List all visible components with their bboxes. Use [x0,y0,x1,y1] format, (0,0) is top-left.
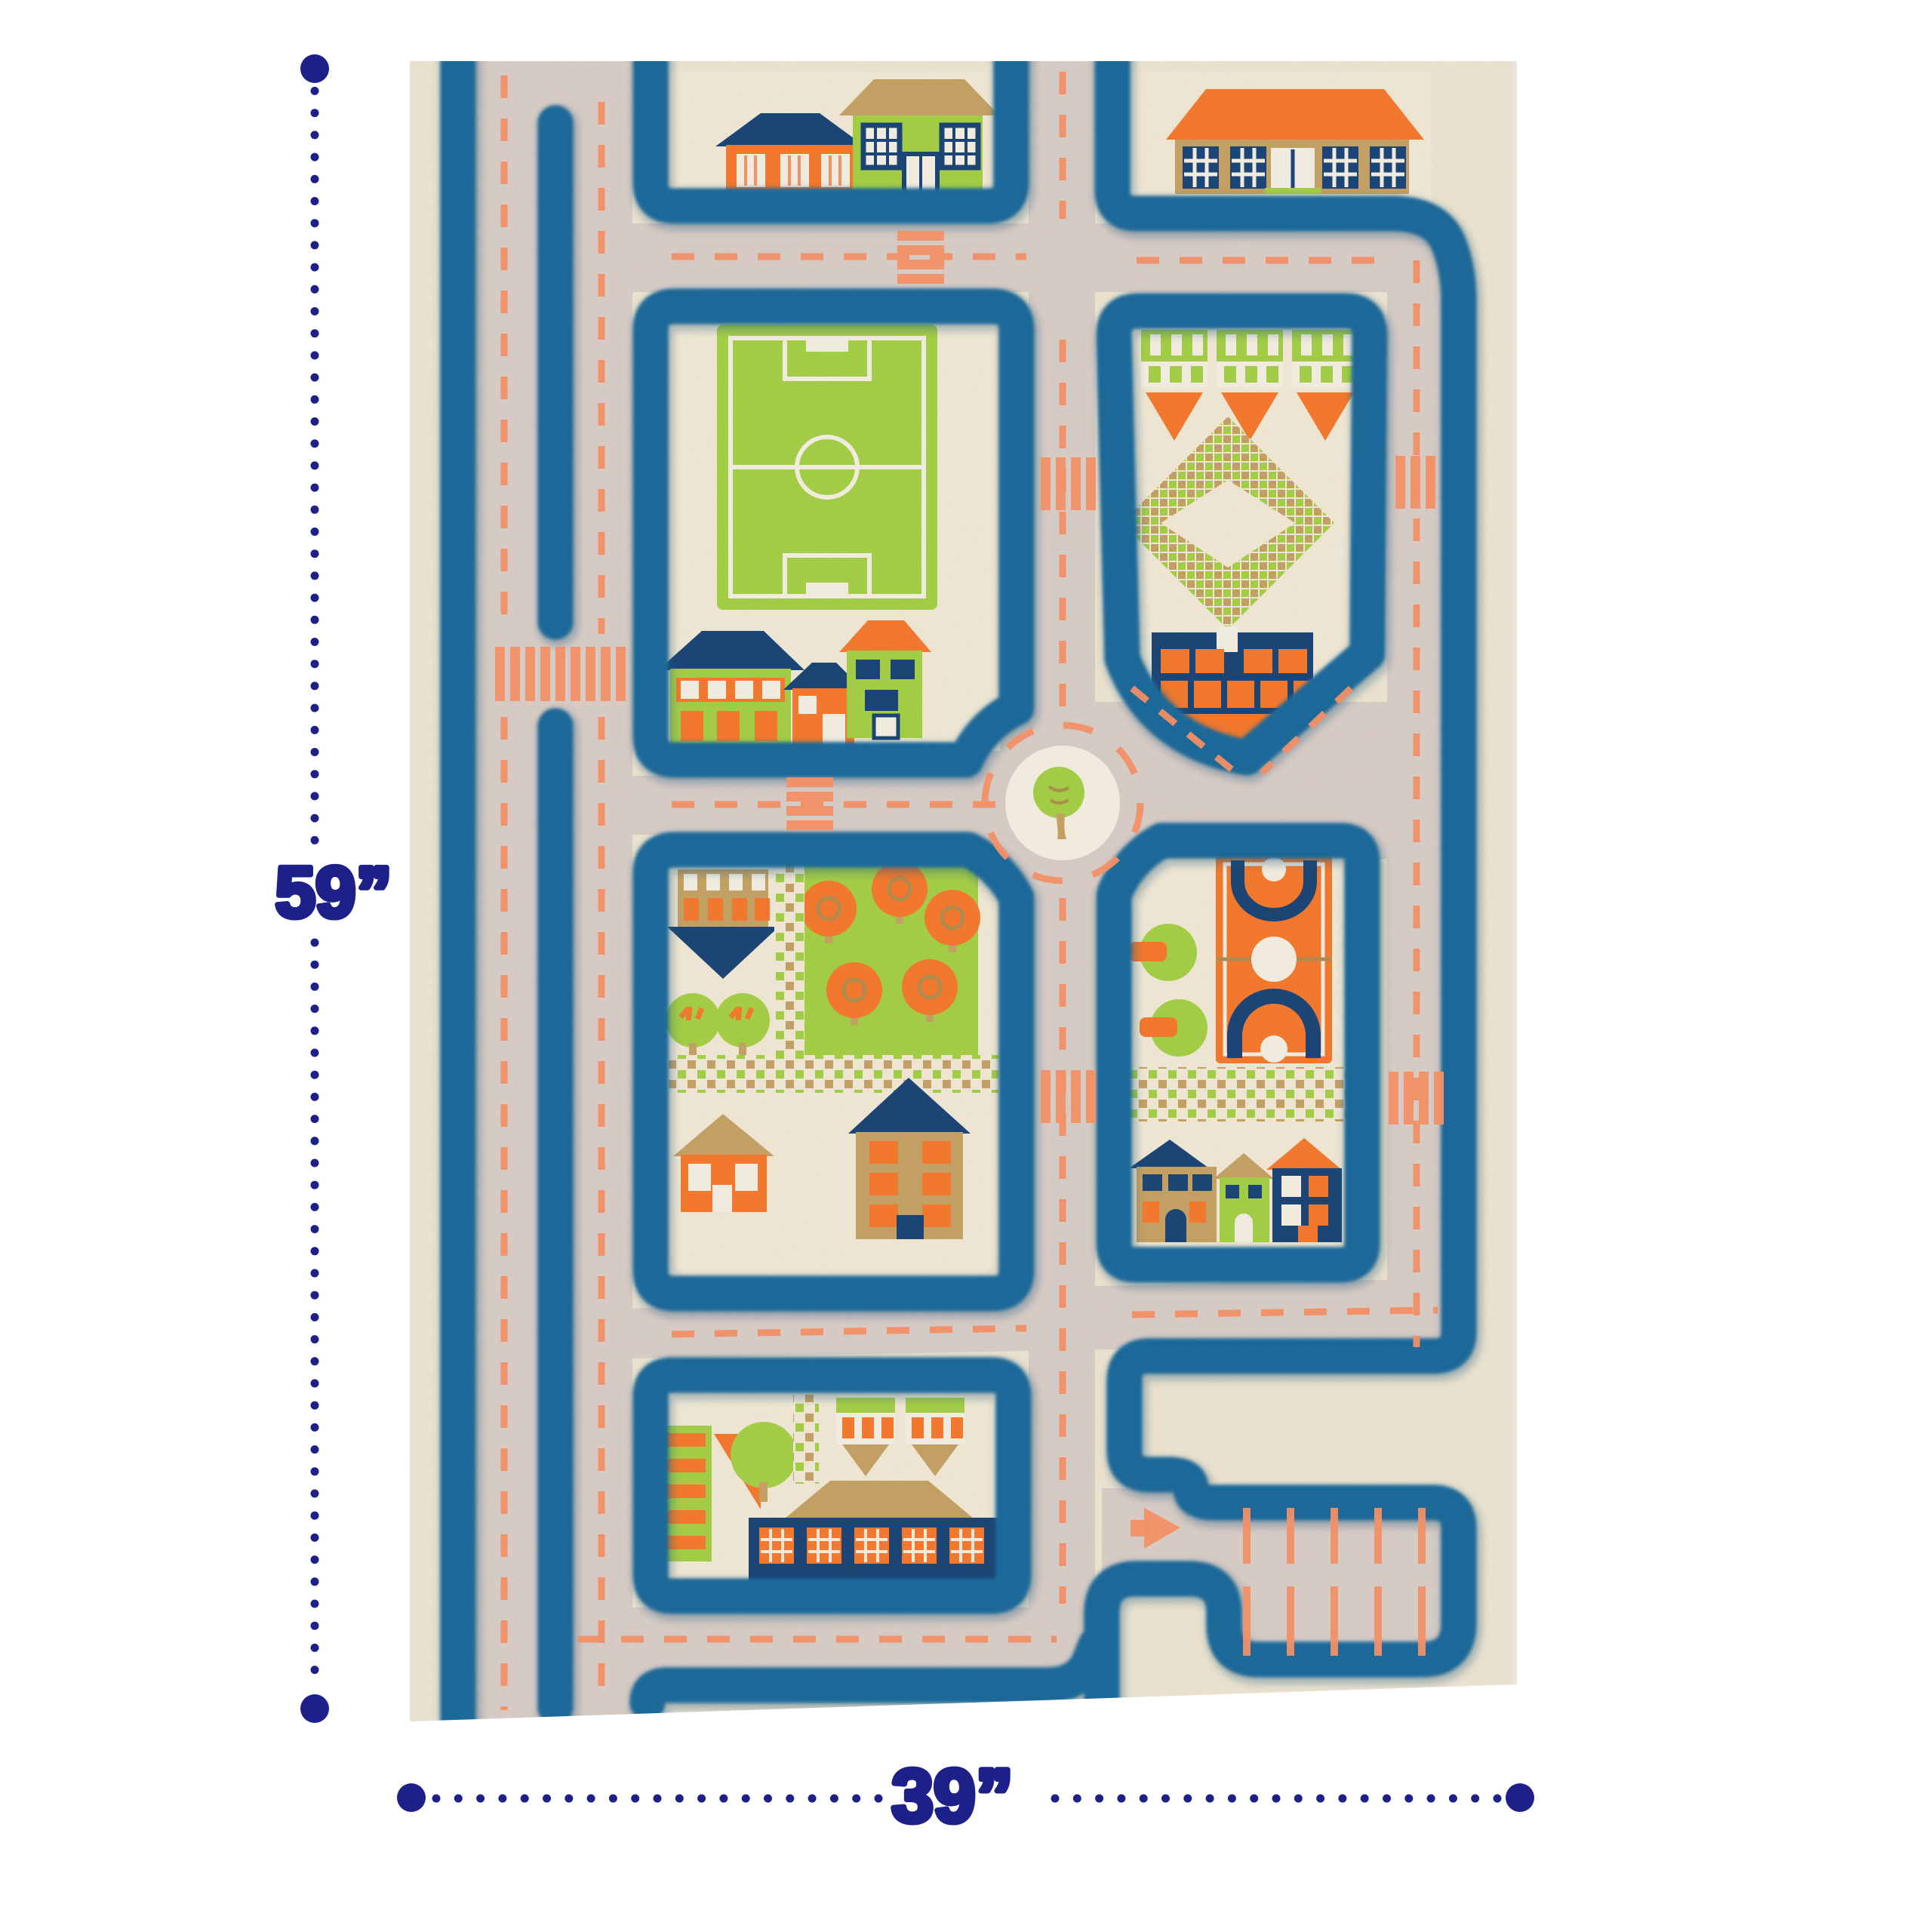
svg-text:59”: 59” [275,852,392,933]
svg-text:39”: 39” [891,1754,1013,1838]
